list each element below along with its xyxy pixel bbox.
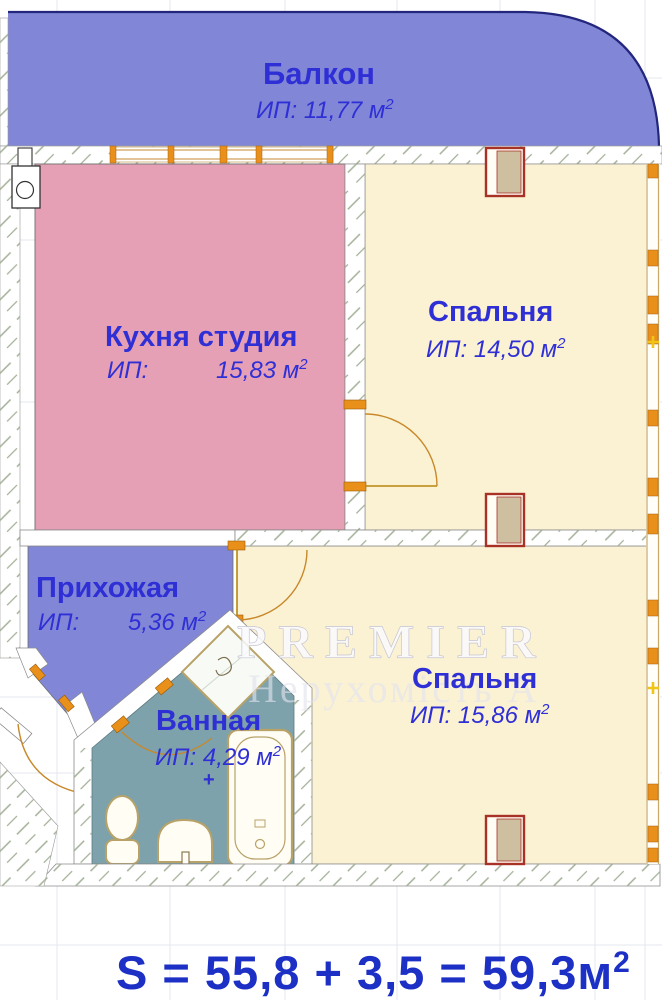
hallway-area-text: 5,36 м <box>128 609 198 636</box>
kitchen-area-sup: 2 <box>298 356 308 373</box>
hallway-area-key: ИП: <box>38 609 79 636</box>
toilet-icon <box>106 796 139 864</box>
window-right <box>646 164 660 864</box>
bathroom-area: ИП: 4,29 м2 <box>155 743 282 771</box>
bedroom-bottom-area-sup: 2 <box>540 701 550 718</box>
radiator <box>486 148 524 196</box>
door-jamb <box>228 541 245 550</box>
kitchen-area-value: 15,83 м2 <box>216 356 308 384</box>
kitchen-area-key: ИП: <box>107 357 148 384</box>
total-area-formula: S = 55,8 + 3,5 = 59,3м2 <box>116 946 631 999</box>
window-kitchen <box>110 146 333 163</box>
bedroom-top-area: ИП: 14,50 м2 <box>426 335 566 363</box>
bathroom-area-text: ИП: 4,29 м <box>155 744 273 771</box>
sink-icon <box>158 820 212 864</box>
wall-middle <box>20 530 648 546</box>
balcony-label: Балкон <box>263 56 375 91</box>
floor-plan-canvas: PREMIER Нерухомість А Балкон ИП: 11,77 м… <box>0 0 662 1000</box>
radiator <box>486 816 524 864</box>
bathroom-label: Ванная <box>156 705 261 737</box>
balcony-area-sup: 2 <box>384 96 394 113</box>
bedroom-bottom-label: Спальня <box>412 663 537 695</box>
bedroom-top-area-text: ИП: 14,50 м <box>426 336 557 363</box>
total-area-text: S = 55,8 + 3,5 = 59,3м <box>116 946 613 999</box>
watermark-line1: PREMIER <box>237 616 548 669</box>
bedroom-bottom-area: ИП: 15,86 м2 <box>410 701 550 729</box>
radiator <box>486 494 524 546</box>
floor-plan-svg: PREMIER Нерухомість А Балкон ИП: 11,77 м… <box>0 0 662 1000</box>
kitchen-label: Кухня студия <box>105 321 297 353</box>
bathroom-area-sup: 2 <box>272 743 282 760</box>
total-area-sup: 2 <box>613 946 631 979</box>
hallway-area-value: 5,36 м2 <box>128 608 207 636</box>
bedroom-top-label: Спальня <box>428 296 553 328</box>
kitchen-area-text: 15,83 м <box>216 357 299 384</box>
balcony-area: ИП: 11,77 м2 <box>256 96 394 124</box>
door-jamb <box>344 482 366 491</box>
bathroom-plus-mark: + <box>203 769 215 791</box>
hallway-area-sup: 2 <box>197 608 207 625</box>
bedroom-top-area-sup: 2 <box>556 335 566 352</box>
balcony-area-text: ИП: 11,77 м <box>256 97 385 124</box>
hallway-label: Прихожая <box>36 572 179 604</box>
entrance-door-leaf <box>0 708 32 744</box>
door-jamb <box>344 400 366 409</box>
bedroom-bottom-area-text: ИП: 15,86 м <box>410 702 541 729</box>
